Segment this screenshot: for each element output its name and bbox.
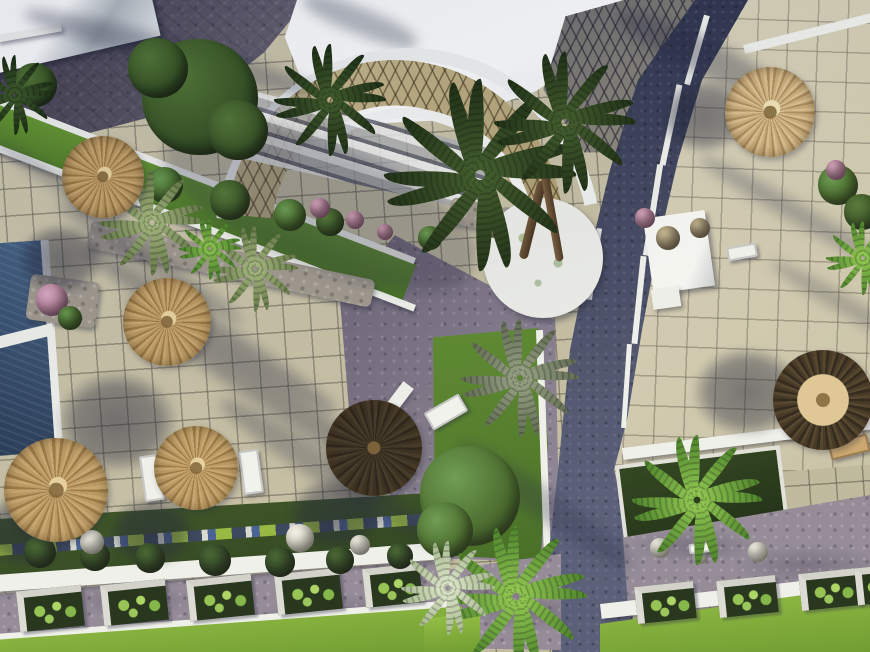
bush-hedge bbox=[326, 546, 354, 574]
bush-tuft bbox=[286, 524, 314, 552]
road-planter-box bbox=[100, 579, 169, 627]
bush-dark bbox=[210, 180, 250, 220]
thatched-parasol bbox=[62, 136, 144, 218]
bush-tuft bbox=[350, 535, 370, 555]
bush-pink bbox=[826, 160, 846, 180]
aerial-render-scene bbox=[0, 0, 870, 652]
road-planter-box bbox=[186, 574, 255, 622]
bush-leafy bbox=[58, 306, 82, 330]
kiosk-step bbox=[651, 286, 682, 310]
thatched-parasol bbox=[773, 350, 870, 450]
bush-leafy bbox=[274, 199, 306, 231]
thatched-parasol bbox=[725, 67, 815, 157]
thatched-parasol bbox=[154, 426, 238, 510]
bush-tuft bbox=[748, 542, 768, 562]
road-planter-box bbox=[798, 568, 861, 611]
bush-hedge bbox=[199, 544, 231, 576]
bush-dark bbox=[208, 100, 268, 160]
thatched-parasol bbox=[326, 400, 422, 496]
thatched-parasol bbox=[4, 438, 108, 542]
road-planter-box bbox=[716, 575, 779, 618]
bush-hedge bbox=[135, 543, 165, 573]
bush-hedge bbox=[265, 547, 295, 577]
bush-dark bbox=[128, 38, 188, 98]
parasol-shadow bbox=[17, 223, 105, 295]
thatched-parasol bbox=[123, 278, 211, 366]
road-planter-box bbox=[16, 585, 85, 633]
bush-pink bbox=[346, 211, 364, 229]
bush-pink bbox=[377, 224, 393, 240]
bush-dry bbox=[656, 226, 680, 250]
road-planter-box bbox=[854, 564, 870, 606]
bush-dry bbox=[690, 218, 710, 238]
bush-pink bbox=[310, 198, 330, 218]
bush-hedge bbox=[387, 543, 413, 569]
road-planter-box bbox=[634, 581, 697, 624]
bush-pink bbox=[635, 208, 655, 228]
